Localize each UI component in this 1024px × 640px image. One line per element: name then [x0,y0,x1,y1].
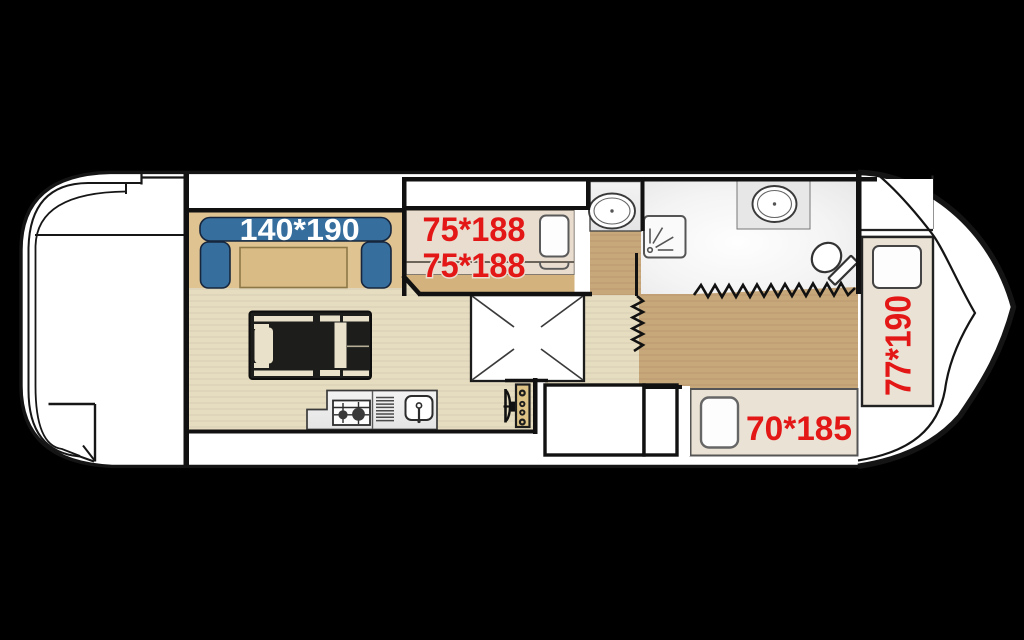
svg-text:70*185: 70*185 [746,410,852,448]
svg-text:77*190: 77*190 [878,295,919,396]
svg-text:75*188: 75*188 [423,247,526,285]
svg-text:75*188: 75*188 [423,211,526,249]
svg-text:140*190: 140*190 [240,212,360,247]
